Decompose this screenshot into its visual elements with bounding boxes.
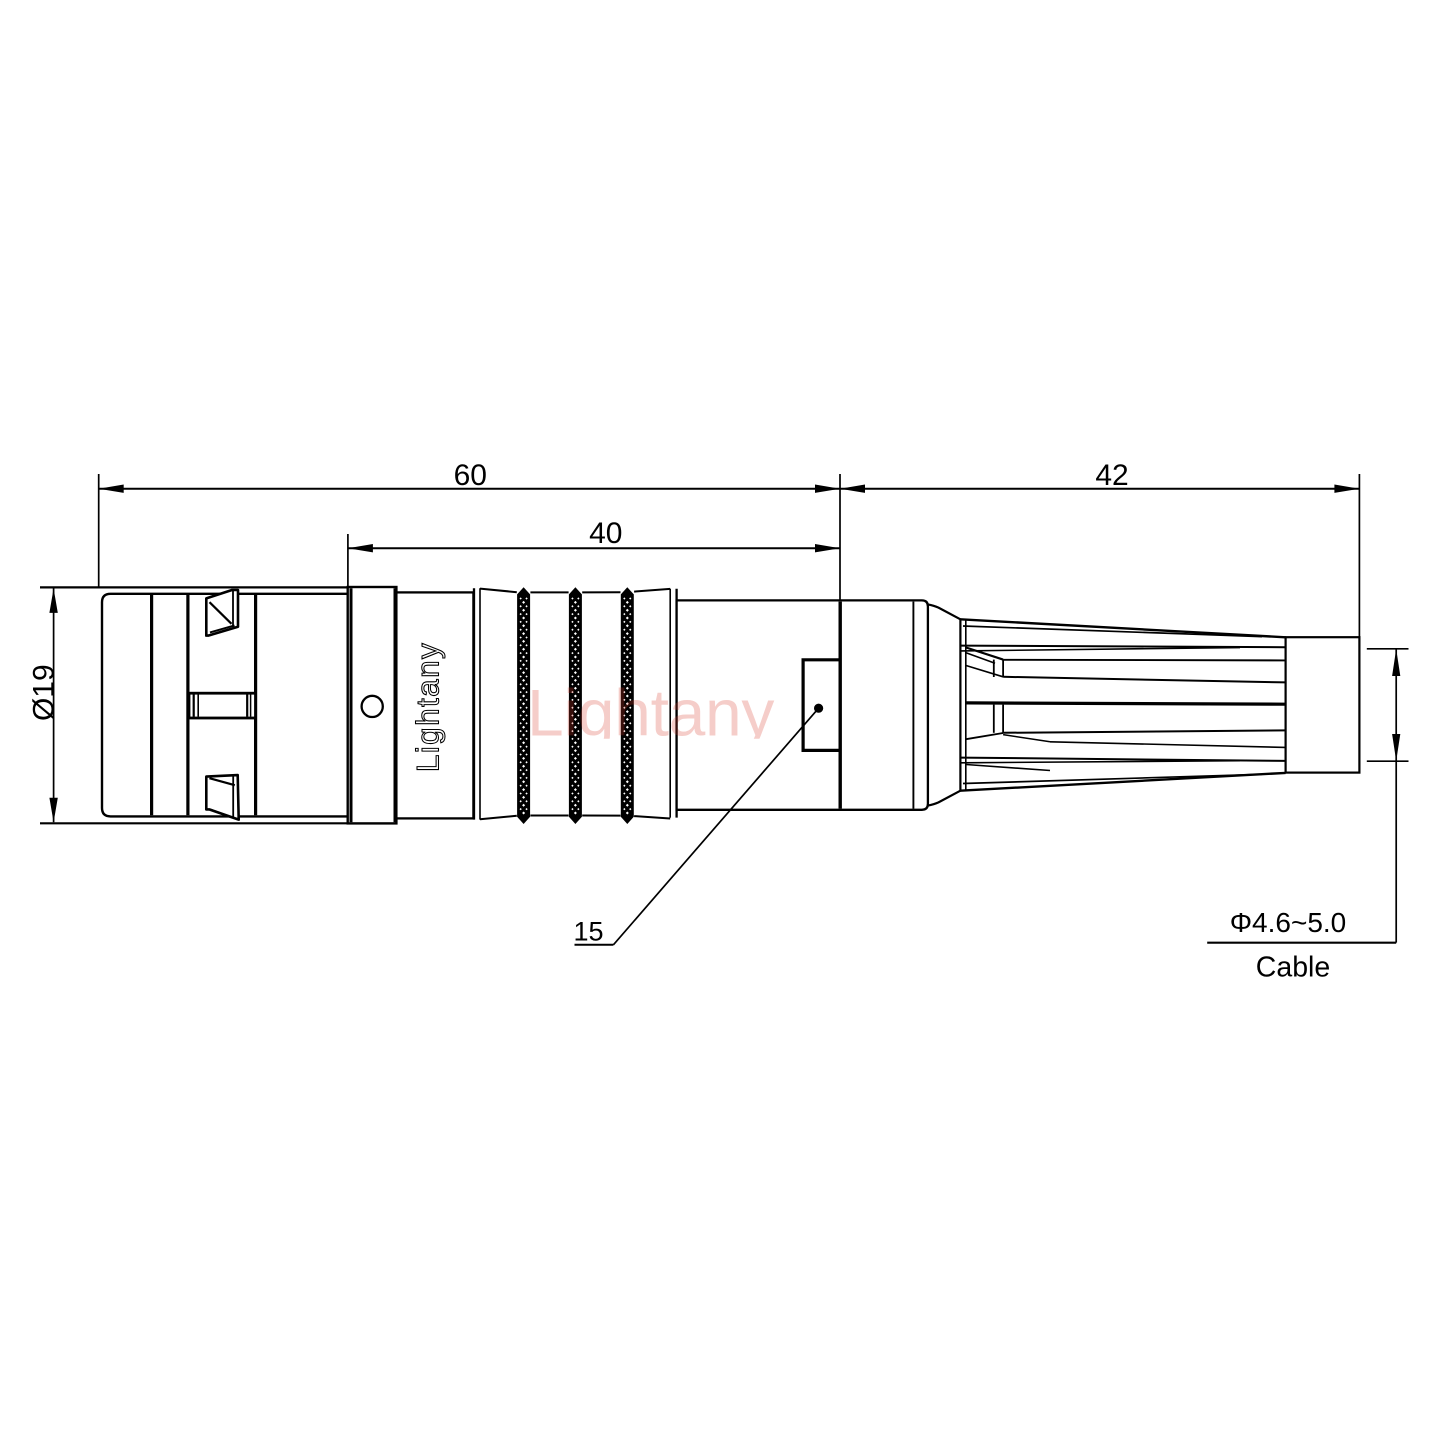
svg-text:Φ4.6~5.0: Φ4.6~5.0 bbox=[1230, 907, 1347, 938]
svg-text:40: 40 bbox=[589, 517, 622, 550]
svg-text:Cable: Cable bbox=[1256, 951, 1330, 983]
svg-text:Ø19: Ø19 bbox=[27, 664, 60, 721]
svg-text:15: 15 bbox=[573, 917, 603, 947]
svg-text:42: 42 bbox=[1095, 459, 1128, 492]
svg-text:60: 60 bbox=[454, 459, 487, 492]
svg-text:Lightany: Lightany bbox=[527, 675, 774, 749]
svg-text:Lightany: Lightany bbox=[410, 642, 446, 772]
